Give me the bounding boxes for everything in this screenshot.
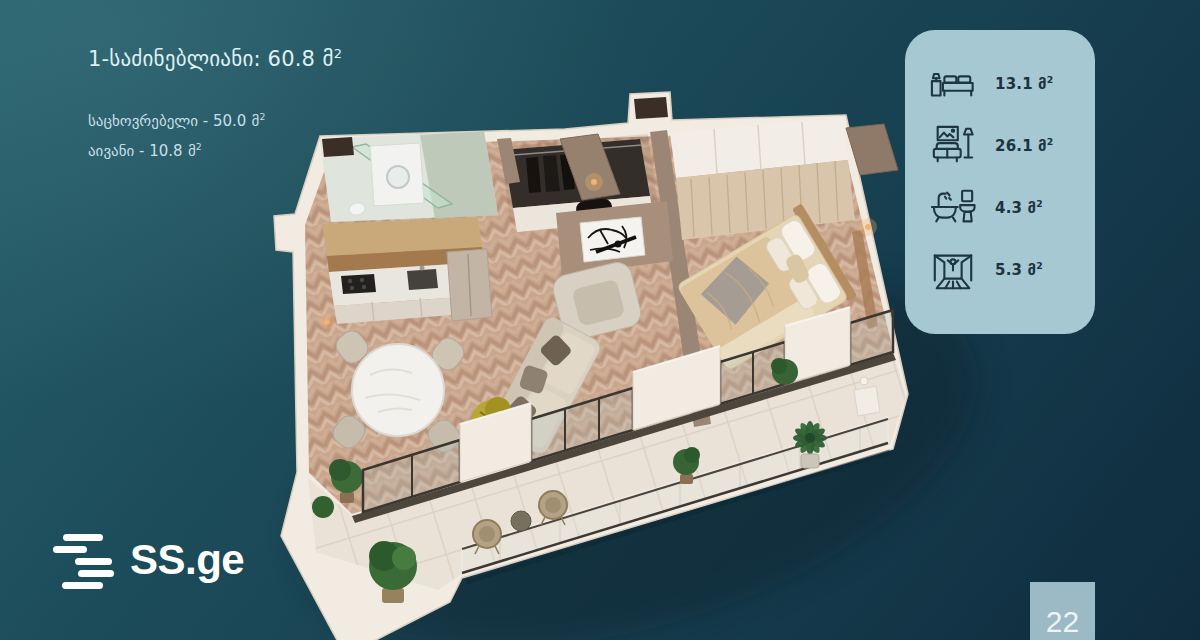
page-title: 1-საძინებლიანი: 60.8მ2 [88, 46, 342, 71]
bathroom-icon [929, 185, 977, 231]
bathroom-area-value: 4.3მ2 [995, 198, 1043, 217]
living-area-value: 26.1მ2 [995, 136, 1053, 155]
legend-row-bathroom: 4.3მ2 [929, 184, 1077, 231]
legend-row-bedroom: 13.1მ2 [929, 60, 1077, 107]
ssge-logo-text: SS.ge [130, 536, 244, 584]
page-number-box: 22 [1030, 582, 1095, 640]
rattan-chair [473, 520, 501, 554]
area-summary: 1-საძინებლიანი: 60.8მ2 საცხოვრებელი - 50… [88, 46, 342, 164]
bed-icon [929, 61, 977, 107]
ssge-logo-icon [52, 531, 122, 591]
area-legend-card: 13.1მ2 26.1მ2 [905, 30, 1095, 334]
dining-table [352, 344, 444, 436]
stove [341, 274, 376, 294]
living-area-label: საცხოვრებელი - 50.0მ2 [88, 104, 342, 134]
slide: 1-საძინებლიანი: 60.8მ2 საცხოვრებელი - 50… [0, 0, 1200, 640]
living-room-icon [929, 123, 977, 169]
legend-row-living: 26.1მ2 [929, 122, 1077, 169]
balcony-icon [929, 247, 977, 293]
kitchen [322, 217, 492, 324]
bedroom-area-value: 13.1მ2 [995, 74, 1053, 93]
sink [407, 269, 438, 290]
balcony-area-value: 5.3მ2 [995, 260, 1043, 279]
legend-row-balcony: 5.3მ2 [929, 246, 1077, 293]
balcony-area-label: აივანი - 10.8მ2 [88, 134, 342, 164]
balcony-table [511, 511, 531, 531]
wall-artwork [580, 217, 645, 262]
balcony-cabinet [854, 386, 880, 416]
rattan-chair [539, 491, 567, 525]
bedroom-wardrobe [670, 118, 855, 240]
page-number: 22 [1046, 605, 1079, 639]
